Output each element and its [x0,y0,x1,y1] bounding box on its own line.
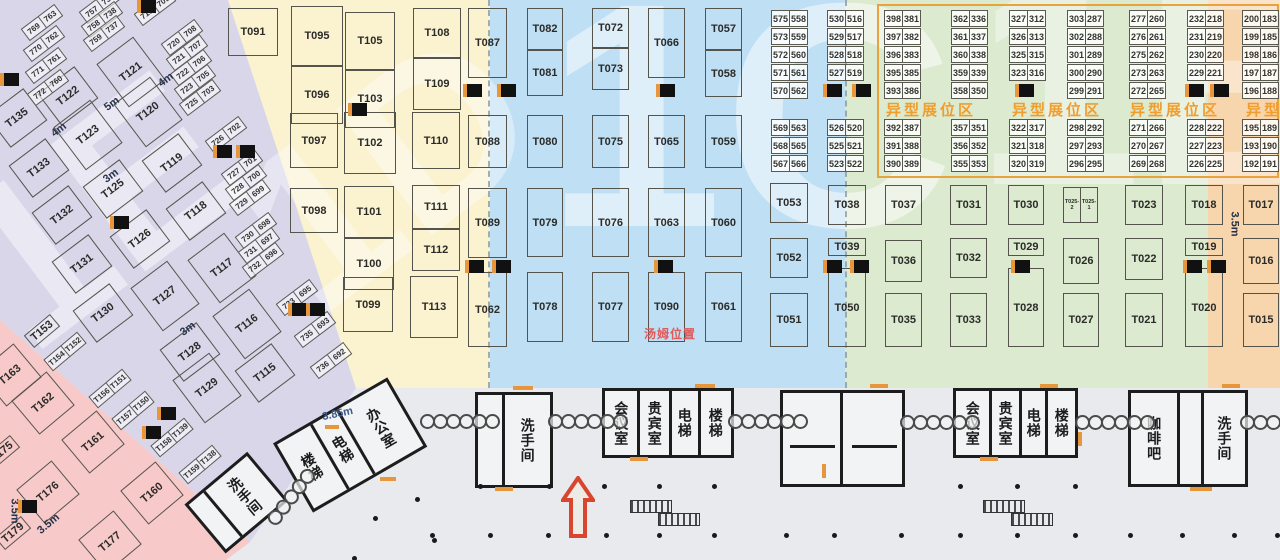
pair-booth-227: 227223 [1187,137,1224,154]
pair-booth-322: 322317 [1009,119,1046,136]
pillar-marker [497,84,516,97]
pair-booth-326: 326313 [1009,28,1046,45]
pair-booth-196: 196188 [1242,82,1279,99]
pair-booth-230: 230220 [1187,46,1224,63]
booth-T072: T072 [592,8,629,48]
booth-T037: T037 [885,185,922,225]
booth-T062: T062 [468,272,507,347]
special-area-label: 异型展位区 [1246,99,1280,120]
pair-booth-226: 226225 [1187,155,1224,172]
column-dot [602,484,607,489]
special-area-label: 异型展位区 [886,99,976,120]
column-dot [784,533,789,538]
door-marker [513,386,533,390]
pair-booth-325: 325315 [1009,46,1046,63]
booth-T053: T053 [770,183,808,223]
booth-T058: T058 [705,50,742,97]
pair-booth-567: 567566 [771,155,808,172]
booth-T015: T015 [1243,293,1279,347]
door-marker [695,384,715,388]
pair-booth-323: 323316 [1009,64,1046,81]
restroom-block-1: 洗手间 [475,392,553,488]
column-dot [657,484,662,489]
pair-booth-320: 320319 [1009,155,1046,172]
pillar-marker [1011,260,1030,273]
column-dot [478,484,483,489]
pair-booth-276: 276261 [1129,28,1166,45]
restroom: 洗手间 [1204,393,1245,484]
room [1180,393,1204,484]
pair-booth-393: 393386 [884,82,921,99]
booth-T080: T080 [527,115,563,168]
pillar-marker [18,500,37,513]
pillar-marker [288,303,307,316]
pair-booth-568: 568565 [771,137,808,154]
pillar-marker [110,216,129,229]
pillar-marker [656,84,675,97]
booth-T038: T038 [828,185,866,225]
booth-T033: T033 [950,293,987,347]
booth-T098: T098 [290,188,338,233]
exhibition-floor-plan: 1C1B1E1D 异型展位区异型展位区异型展位区异型展位区 T091T095T0… [0,0,1280,560]
booth-T050: T050 [828,268,866,347]
restroom: 洗手间 [505,395,550,485]
booth-T076: T076 [592,188,629,257]
pair-booth-301: 301289 [1067,46,1104,63]
pair-booth-575: 575558 [771,10,808,27]
door-marker [325,425,339,429]
column-dot [1073,533,1078,538]
pair-booth-392: 392387 [884,119,921,136]
column-dot [488,533,493,538]
pair-booth-361: 361337 [951,28,988,45]
column-dot [1015,484,1020,489]
booth-T032: T032 [950,238,987,278]
pair-booth-277: 277260 [1129,10,1166,27]
door-marker [495,487,513,491]
pair-booth-530: 530516 [827,10,864,27]
booth-T066: T066 [648,8,685,78]
pair-booth-360: 360338 [951,46,988,63]
pair-booth-573: 573559 [771,28,808,45]
pair-booth-527: 527519 [827,64,864,81]
column-dot [832,533,837,538]
column-dot [547,484,552,489]
pair-booth-526: 526520 [827,119,864,136]
pair-booth-572: 572560 [771,46,808,63]
column-dot [352,556,357,560]
booth-T039: T039 [828,238,866,256]
pair-booth-321: 321318 [1009,137,1046,154]
pair-booth-195: 195189 [1242,119,1279,136]
column-dot [373,516,378,521]
elevator-room: 电梯 [672,391,701,455]
door-marker [380,477,396,481]
booth-T060: T060 [705,188,742,257]
pillar-marker [492,260,511,273]
booth-T036: T036 [885,240,922,282]
door-marker [822,464,826,478]
column-dot [1180,533,1185,538]
booth-T097: T097 [290,113,338,168]
pair-booth-198: 198186 [1242,46,1279,63]
booth-T111: T111 [412,185,460,229]
circle-chain [900,415,978,430]
booth-T099: T099 [343,277,393,332]
booth-T063: T063 [648,188,685,257]
booth-T028: T028 [1008,268,1044,347]
column-dot [546,533,551,538]
stairs-room: 楼梯 [701,391,731,455]
pair-booth-271: 271266 [1129,119,1166,136]
pillar-marker [137,0,156,13]
door-marker [1222,384,1240,388]
pair-booth-303: 303287 [1067,10,1104,27]
pair-booth-362: 362336 [951,10,988,27]
circle-chain [1075,415,1153,430]
booth-T078: T078 [527,272,563,342]
pair-booth-199: 199185 [1242,28,1279,45]
pair-booth-299: 299291 [1067,82,1104,99]
pair-booth-300: 300290 [1067,64,1104,81]
booth-T026: T026 [1063,238,1099,284]
column-dot [432,538,437,543]
pair-booth-272: 272265 [1129,82,1166,99]
pair-booth-197: 197187 [1242,64,1279,81]
door-marker [1040,384,1058,388]
elevator-room: 电梯 [1022,391,1049,455]
booth-T089: T089 [468,188,507,258]
column-dot [1275,533,1280,538]
booth-T079: T079 [527,188,563,257]
column-dot [712,533,717,538]
booth-T073: T073 [592,48,629,90]
pillar-marker [850,260,869,273]
pillar-marker [823,84,842,97]
pair-booth-192: 192191 [1242,155,1279,172]
booth-T059: T059 [705,115,742,168]
column-dot [604,533,609,538]
column-dot [415,497,420,502]
special-area-label: 异型展位区 [1012,99,1102,120]
room [783,393,843,484]
stairs-symbol-icon [658,513,700,526]
coffee-restroom-block: 咖啡吧洗手间 [1128,390,1248,487]
column-dot [712,484,717,489]
vip-room: 贵宾室 [992,391,1022,455]
pair-booth-525: 525521 [827,137,864,154]
circle-chain [728,414,806,429]
pair-booth-390: 390389 [884,155,921,172]
measure-label: 3.5m [1229,211,1241,236]
pair-booth-570: 570562 [771,82,808,99]
pillar-marker [823,260,842,273]
pillar-marker [157,407,176,420]
pair-booth-297: 297293 [1067,137,1104,154]
booth-T102: T102 [344,112,396,174]
entrance-arrow-icon [561,476,595,538]
booth-T018: T018 [1185,185,1223,225]
pillar-marker [1185,84,1204,97]
booth-T057: T057 [705,8,742,50]
pair-booth-232: 232218 [1187,10,1224,27]
pair-booth-359: 359339 [951,64,988,81]
door-marker [1078,432,1082,446]
column-dot [1232,533,1237,538]
booth-T020: T020 [1185,268,1223,347]
booth-T035: T035 [885,293,922,347]
pair-booth-391: 391388 [884,137,921,154]
booth-T101: T101 [344,186,394,238]
circle-chain [420,414,498,429]
pair-booth-327: 327312 [1009,10,1046,27]
booth-T031: T031 [950,185,987,225]
booth-T051: T051 [770,293,808,347]
pillar-marker [1210,84,1229,97]
booth-T091: T091 [228,8,278,56]
column-dot [657,533,662,538]
booth-T052: T052 [770,238,808,278]
booth-T113: T113 [410,276,458,338]
column-dot [1128,533,1133,538]
booth-T088: T088 [468,115,507,168]
inner-wall [790,445,835,448]
booth-T095: T095 [291,6,343,66]
pair-booth-200: 200183 [1242,10,1279,27]
stairs-symbol-icon [630,500,672,513]
pair-booth-523: 523522 [827,155,864,172]
pair-booth-296: 296295 [1067,155,1104,172]
booth-T030: T030 [1008,185,1044,225]
pillar-marker [1015,84,1034,97]
booth-T087: T087 [468,8,507,78]
door-marker [870,384,888,388]
pair-booth-356: 356352 [951,137,988,154]
stairs-symbol-icon [1011,513,1053,526]
pair-booth-269: 269268 [1129,155,1166,172]
door-marker [630,457,648,461]
booth-T027: T027 [1063,293,1099,347]
pillar-marker [213,145,232,158]
column-dot [958,484,963,489]
booth-T023: T023 [1125,185,1163,225]
pair-booth-270: 270267 [1129,137,1166,154]
pillar-marker [0,73,19,86]
pair-booth-228: 228222 [1187,119,1224,136]
pair-booth-357: 357351 [951,119,988,136]
booth-T110: T110 [412,112,460,169]
pillar-marker [236,145,255,158]
booth-T112: T112 [412,229,460,271]
circle-chain [548,414,626,429]
special-area-label: 异型展位区 [1130,99,1220,120]
pillar-marker [306,303,325,316]
pair-booth-275: 275262 [1129,46,1166,63]
door-marker [1190,487,1212,491]
pillar-marker [348,103,367,116]
pair-booth-569: 569563 [771,119,808,136]
door-marker [980,457,998,461]
pair-booth-358: 358350 [951,82,988,99]
pair-booth-302: 302288 [1067,28,1104,45]
booth-T025-2: T025-2T025-1 [1063,187,1098,223]
pillar-marker [463,84,482,97]
stairs-symbol-icon [983,500,1025,513]
pair-booth-229: 229221 [1187,64,1224,81]
tom-position-label: 汤姆位置 [644,325,696,342]
booth-T105: T105 [345,12,395,70]
column-dot [1015,533,1020,538]
booth-T016: T016 [1243,238,1279,284]
pillar-marker [142,426,161,439]
pair-booth-571: 571561 [771,64,808,81]
pair-booth-529: 529517 [827,28,864,45]
booth-T019: T019 [1185,238,1223,256]
column-dot [1073,484,1078,489]
inner-wall [852,445,897,448]
column-dot [958,533,963,538]
pillar-marker [852,84,871,97]
pair-booth-528: 528518 [827,46,864,63]
booth-T061: T061 [705,272,742,342]
stairs-room: 楼梯 [1048,391,1075,455]
pair-booth-231: 231219 [1187,28,1224,45]
pair-booth-398: 398381 [884,10,921,27]
booth-T077: T077 [592,272,629,342]
anteroom [478,395,505,485]
room [843,393,902,484]
utility-block [780,390,905,487]
coffee-bar: 咖啡吧 [1131,393,1180,484]
vip-room: 贵宾室 [640,391,672,455]
booth-T075: T075 [592,115,629,168]
pair-booth-298: 298292 [1067,119,1104,136]
pillar-marker [465,260,484,273]
booth-T081: T081 [527,50,563,96]
booth-T017: T017 [1243,185,1279,225]
circle-chain [1240,415,1280,430]
booth-T065: T065 [648,115,685,168]
pillar-marker [1207,260,1226,273]
booth-T082: T082 [527,8,563,50]
column-dot [899,533,904,538]
booth-T022: T022 [1125,238,1163,280]
pair-booth-397: 397382 [884,28,921,45]
pair-booth-355: 355353 [951,155,988,172]
booth-T029: T029 [1008,238,1044,256]
pair-booth-395: 395385 [884,64,921,81]
pair-booth-273: 273263 [1129,64,1166,81]
booth-T109: T109 [413,58,461,110]
pair-booth-396: 396383 [884,46,921,63]
booth-T021: T021 [1125,293,1163,347]
pillar-marker [654,260,673,273]
pair-booth-193: 193190 [1242,137,1279,154]
booth-T108: T108 [413,8,461,58]
pillar-marker [1183,260,1202,273]
